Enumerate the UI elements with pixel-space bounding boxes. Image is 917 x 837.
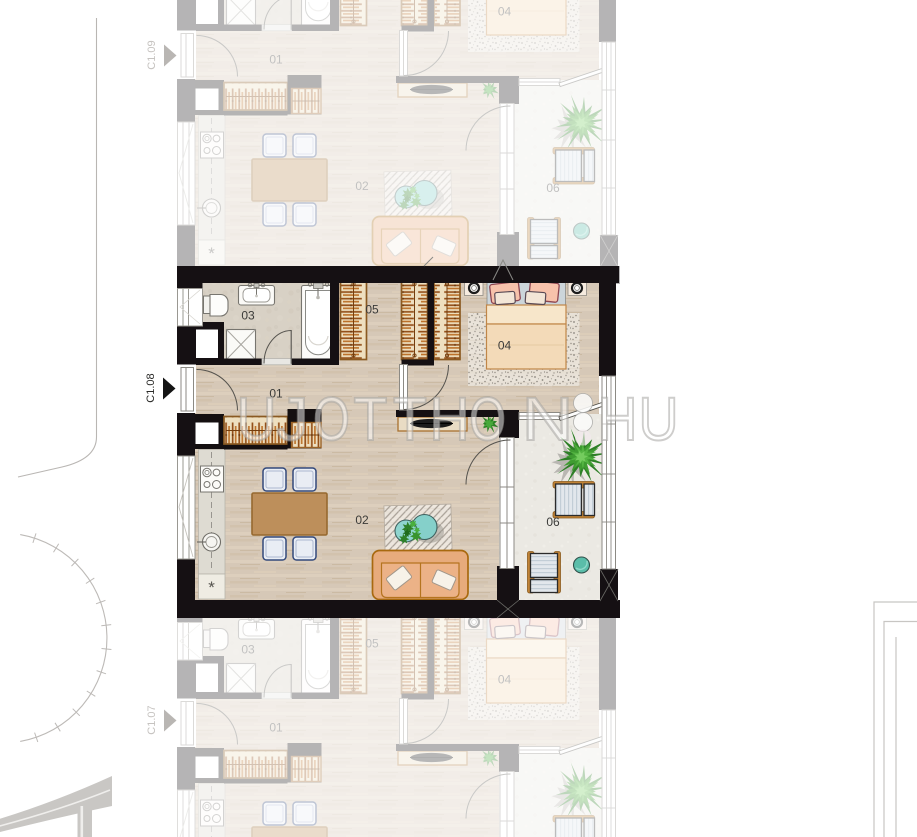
svg-text:02: 02 bbox=[355, 179, 369, 193]
svg-text:04: 04 bbox=[498, 339, 512, 353]
svg-text:U: U bbox=[236, 386, 276, 454]
svg-text:N: N bbox=[522, 386, 574, 454]
svg-text:H: H bbox=[429, 386, 469, 454]
svg-text:C1.09: C1.09 bbox=[146, 40, 158, 69]
svg-text:J: J bbox=[276, 386, 308, 454]
svg-text:04: 04 bbox=[498, 5, 512, 19]
svg-text:03: 03 bbox=[241, 309, 255, 323]
svg-text:C1.08: C1.08 bbox=[145, 373, 157, 402]
svg-text:O: O bbox=[469, 385, 506, 453]
svg-text:*: * bbox=[208, 578, 215, 597]
svg-text:C1.07: C1.07 bbox=[146, 705, 158, 734]
svg-text:06: 06 bbox=[546, 181, 560, 195]
svg-text:05: 05 bbox=[365, 303, 379, 317]
svg-text:T: T bbox=[393, 386, 427, 454]
svg-text:02: 02 bbox=[355, 513, 369, 527]
svg-text:U: U bbox=[638, 386, 678, 454]
svg-text:O: O bbox=[313, 385, 350, 453]
svg-text:T: T bbox=[354, 386, 388, 454]
svg-text:06: 06 bbox=[546, 515, 560, 529]
svg-text:H: H bbox=[597, 386, 637, 454]
svg-text:01: 01 bbox=[269, 53, 283, 67]
svg-text:01: 01 bbox=[269, 721, 283, 735]
svg-text:05: 05 bbox=[365, 637, 379, 651]
svg-text:04: 04 bbox=[498, 673, 512, 687]
svg-text:03: 03 bbox=[241, 643, 255, 657]
svg-text:*: * bbox=[208, 244, 215, 263]
